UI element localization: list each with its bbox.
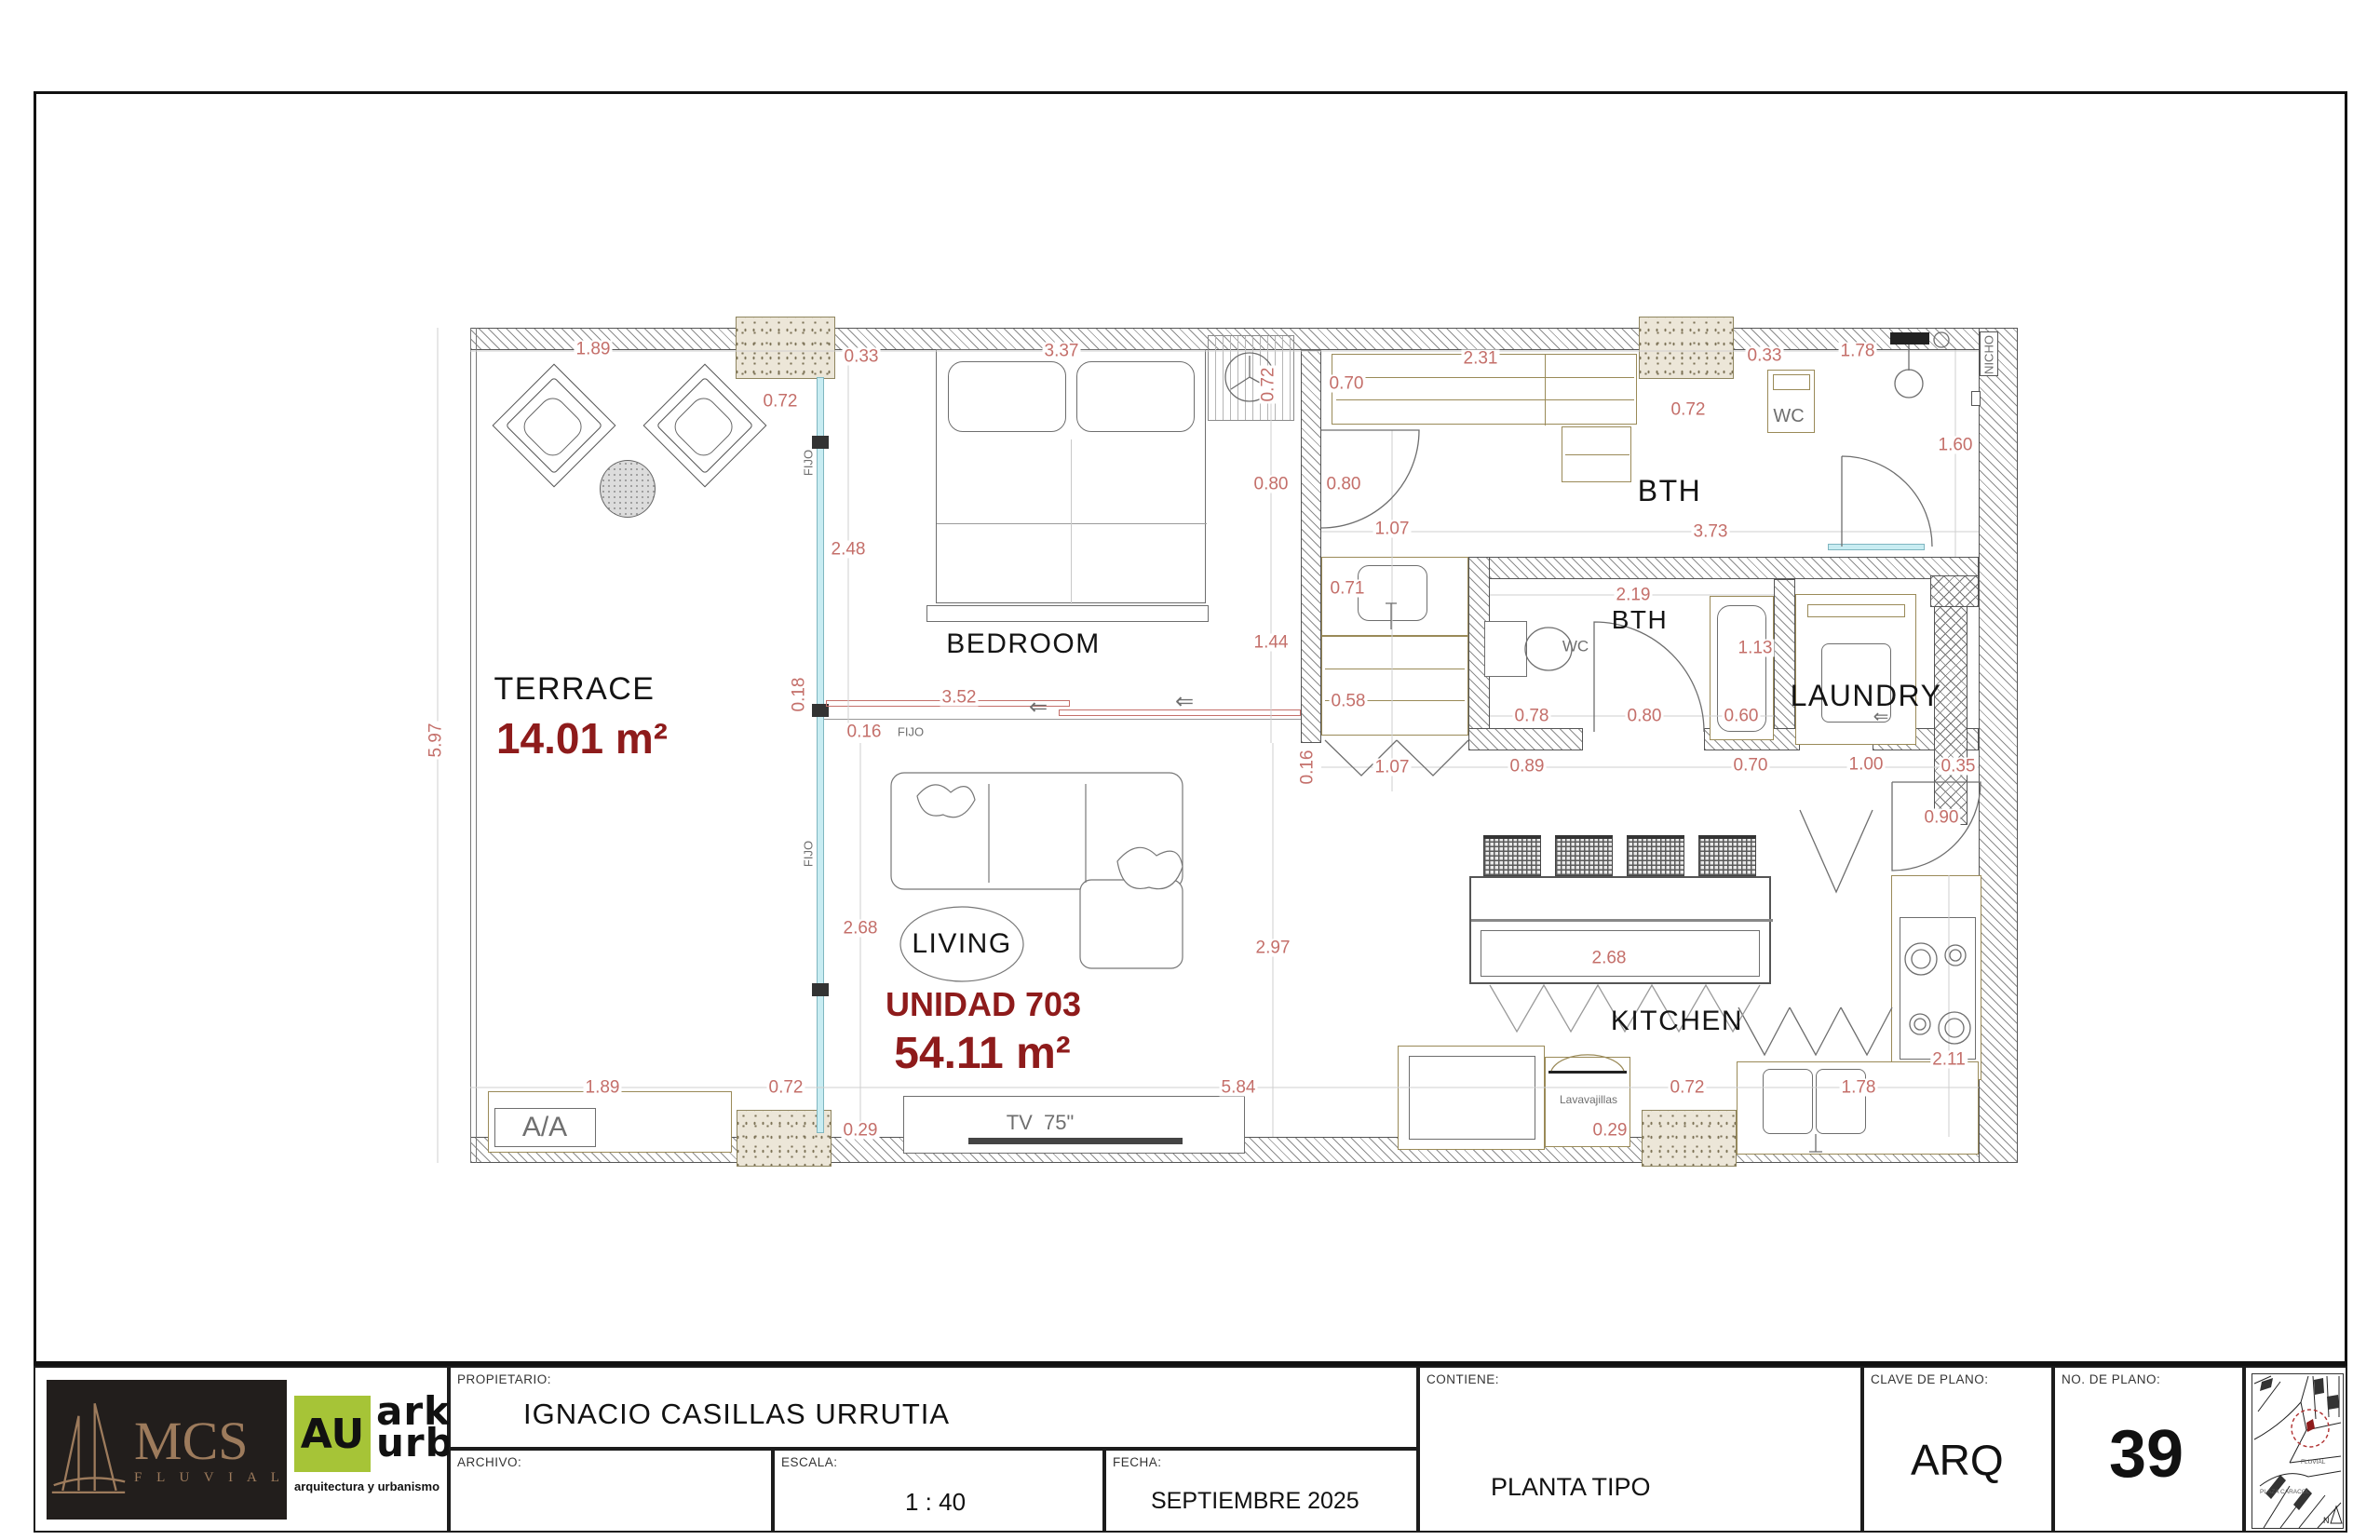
propietario-cell: PROPIETARIO: IGNACIO CASILLAS URRUTIA [449, 1366, 1418, 1449]
arkurb-word-urb: urb [376, 1427, 454, 1459]
dimension-label: 0.70 [1732, 757, 1770, 775]
arkurb-logo: AU ark urb arquitectura y urbanismo [294, 1394, 448, 1515]
numero-value: 39 [2109, 1416, 2184, 1493]
contiene-cell: CONTIENE: PLANTA TIPO UNIDAD 703 NIVEL 7 [1418, 1366, 1862, 1533]
location-map: PLAZA CARACOL FLUVIAL N [2252, 1373, 2344, 1529]
escala-cell: ESCALA: 1 : 40 [773, 1449, 1104, 1533]
fixture-label: FIJO [803, 841, 815, 867]
dimension-label: 0.70 [1328, 375, 1366, 393]
contiene-line1: PLANTA TIPO [1491, 1471, 1651, 1505]
dimension-label: 0.72 [1669, 1079, 1707, 1097]
dimension-label: 1.60 [1937, 437, 1975, 454]
dimension-label: 0.60 [1723, 708, 1761, 725]
fecha-cell: FECHA: SEPTIEMBRE 2025 [1104, 1449, 1418, 1533]
arkurb-wordmark: ark urb [376, 1396, 454, 1458]
dimension-label: 2.68 [842, 920, 880, 938]
dimension-label: 1.00 [1847, 756, 1886, 774]
area-label: 54.11 m² [894, 1032, 1070, 1076]
dimension-label: 0.33 [843, 348, 881, 366]
title-block: MCS F L U V I A L AU ark urb arquitectur… [34, 1366, 2347, 1533]
contiene-value: PLANTA TIPO UNIDAD 703 NIVEL 7 [1491, 1405, 1651, 1540]
dimension-label: 0.80 [1325, 476, 1363, 493]
fixture-label: WC [1562, 639, 1589, 655]
mcs-logo: MCS F L U V I A L [47, 1380, 287, 1520]
dimension-label: 0.72 [767, 1079, 805, 1097]
room-label: KITCHEN [1611, 1007, 1743, 1035]
mcs-logo-text: MCS [134, 1414, 285, 1468]
dimension-label: 3.37 [1043, 343, 1081, 360]
mcs-sail-icon [48, 1395, 128, 1505]
dimension-label: 0.29 [1591, 1122, 1629, 1140]
dimension-label: 5.97 [427, 722, 445, 760]
escala-value: 1 : 40 [905, 1488, 966, 1517]
dimension-label: 1.07 [1373, 759, 1412, 777]
dimension-label: 0.72 [762, 393, 800, 411]
room-label: BEDROOM [946, 630, 1101, 658]
archivo-label: ARCHIVO: [457, 1455, 521, 1469]
numero-cell: NO. DE PLANO: 39 [2053, 1366, 2244, 1533]
dimension-label: 1.89 [584, 1079, 622, 1097]
dimension-label: 1.89 [575, 341, 613, 358]
mcs-logo-sub: F L U V I A L [134, 1470, 285, 1486]
fixture-label: FIJO [898, 726, 924, 738]
dimension-label: 0.71 [1329, 580, 1367, 598]
room-label: BTH [1638, 476, 1702, 506]
dimension-label: 0.80 [1252, 476, 1291, 493]
area-label: UNIDAD 703 [886, 988, 1081, 1021]
room-label: LIVING [912, 930, 1011, 958]
dimension-label: 0.78 [1513, 708, 1551, 725]
fixture-label: A/A [522, 1114, 567, 1141]
dimension-label: 0.89 [1508, 758, 1547, 776]
contiene-label: CONTIENE: [1427, 1372, 1499, 1386]
dimension-label: 3.52 [940, 689, 979, 707]
dimension-label: 1.07 [1373, 520, 1412, 538]
dimension-label: 0.72 [1260, 366, 1278, 404]
logo-cell: MCS F L U V I A L AU ark urb arquitectur… [34, 1366, 449, 1533]
area-label: 14.01 m² [496, 717, 668, 760]
fixture-label: WC [1773, 407, 1804, 426]
fixture-label: FIJO [803, 450, 815, 476]
map-label-plaza: PLAZA CARACOL [2260, 1489, 2310, 1495]
dimension-label: 0.18 [791, 676, 808, 714]
dimension-label: 0.80 [1626, 708, 1664, 725]
propietario-label: PROPIETARIO: [457, 1372, 551, 1386]
svg-text:N: N [2323, 1516, 2330, 1525]
dimension-label: 2.97 [1254, 939, 1292, 957]
dimension-label: 2.19 [1615, 587, 1653, 604]
escala-label: ESCALA: [781, 1455, 838, 1469]
map-cell: PLAZA CARACOL FLUVIAL N [2244, 1366, 2347, 1533]
fixture-label: NICHO [1983, 335, 1995, 374]
dimension-label: 0.90 [1923, 809, 1961, 827]
clave-cell: CLAVE DE PLANO: ARQ [1862, 1366, 2053, 1533]
fixture-label: ⇐ [1175, 691, 1194, 713]
dimension-label: 1.78 [1839, 343, 1877, 360]
arkurb-monogram: AU [301, 1411, 364, 1458]
archivo-cell: ARCHIVO: [449, 1449, 773, 1533]
dimension-label: 3.73 [1692, 523, 1730, 541]
room-label: TERRACE [494, 673, 656, 705]
labels-layer: 1.890.333.372.310.331.780.720.700.720.72… [0, 0, 2380, 1540]
clave-label: CLAVE DE PLANO: [1871, 1372, 1989, 1386]
fixture-label: ⇐ [1029, 696, 1048, 719]
dimension-label: 0.72 [1670, 401, 1708, 419]
dimension-label: 2.48 [830, 541, 868, 559]
dimension-label: 0.16 [1299, 749, 1317, 787]
map-label-fluvial: FLUVIAL [2301, 1459, 2326, 1466]
fecha-value: SEPTIEMBRE 2025 [1151, 1488, 1359, 1515]
dimension-label: 0.33 [1746, 347, 1784, 365]
dimension-label: 0.35 [1940, 758, 1978, 776]
arkurb-monogram-box: AU [294, 1396, 371, 1472]
dimension-label: 0.58 [1330, 693, 1368, 710]
clave-value: ARQ [1911, 1435, 2004, 1485]
dimension-label: 5.84 [1220, 1079, 1258, 1097]
room-label: BTH [1612, 607, 1669, 633]
dimension-label: 0.16 [845, 723, 884, 741]
arkurb-subtitle: arquitectura y urbanismo [294, 1479, 453, 1493]
floor-plan: 1.890.333.372.310.331.780.720.700.720.72… [0, 0, 2380, 1540]
dimension-label: 2.11 [1930, 1051, 1968, 1069]
fixture-label: Lavavajillas [1560, 1094, 1617, 1105]
dimension-label: 2.31 [1462, 350, 1500, 368]
plan-sheet: 1.890.333.372.310.331.780.720.700.720.72… [0, 0, 2380, 1540]
numero-label: NO. DE PLANO: [2062, 1372, 2160, 1386]
fixture-label: ⇐ [1873, 708, 1889, 726]
room-label: LAUNDRY [1791, 681, 1942, 710]
fixture-label: TV 75" [1007, 1113, 1075, 1133]
dimension-label: 2.68 [1590, 950, 1629, 967]
propietario-value: IGNACIO CASILLAS URRUTIA [523, 1398, 950, 1431]
dimension-label: 1.78 [1840, 1079, 1878, 1097]
dimension-label: 1.13 [1737, 640, 1775, 657]
dimension-label: 1.44 [1252, 634, 1291, 652]
fecha-label: FECHA: [1113, 1455, 1162, 1469]
dimension-label: 0.29 [842, 1122, 880, 1140]
